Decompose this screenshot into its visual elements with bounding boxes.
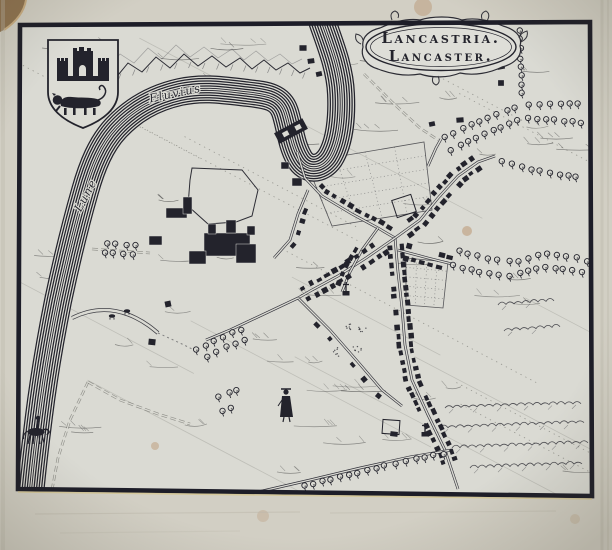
antique-map-page: Fluvius Lune L: [0, 0, 612, 550]
page-margin-decor: [0, 0, 612, 550]
map-engraving: Fluvius Lune L: [0, 0, 612, 550]
vignette-overlay: [0, 0, 612, 550]
